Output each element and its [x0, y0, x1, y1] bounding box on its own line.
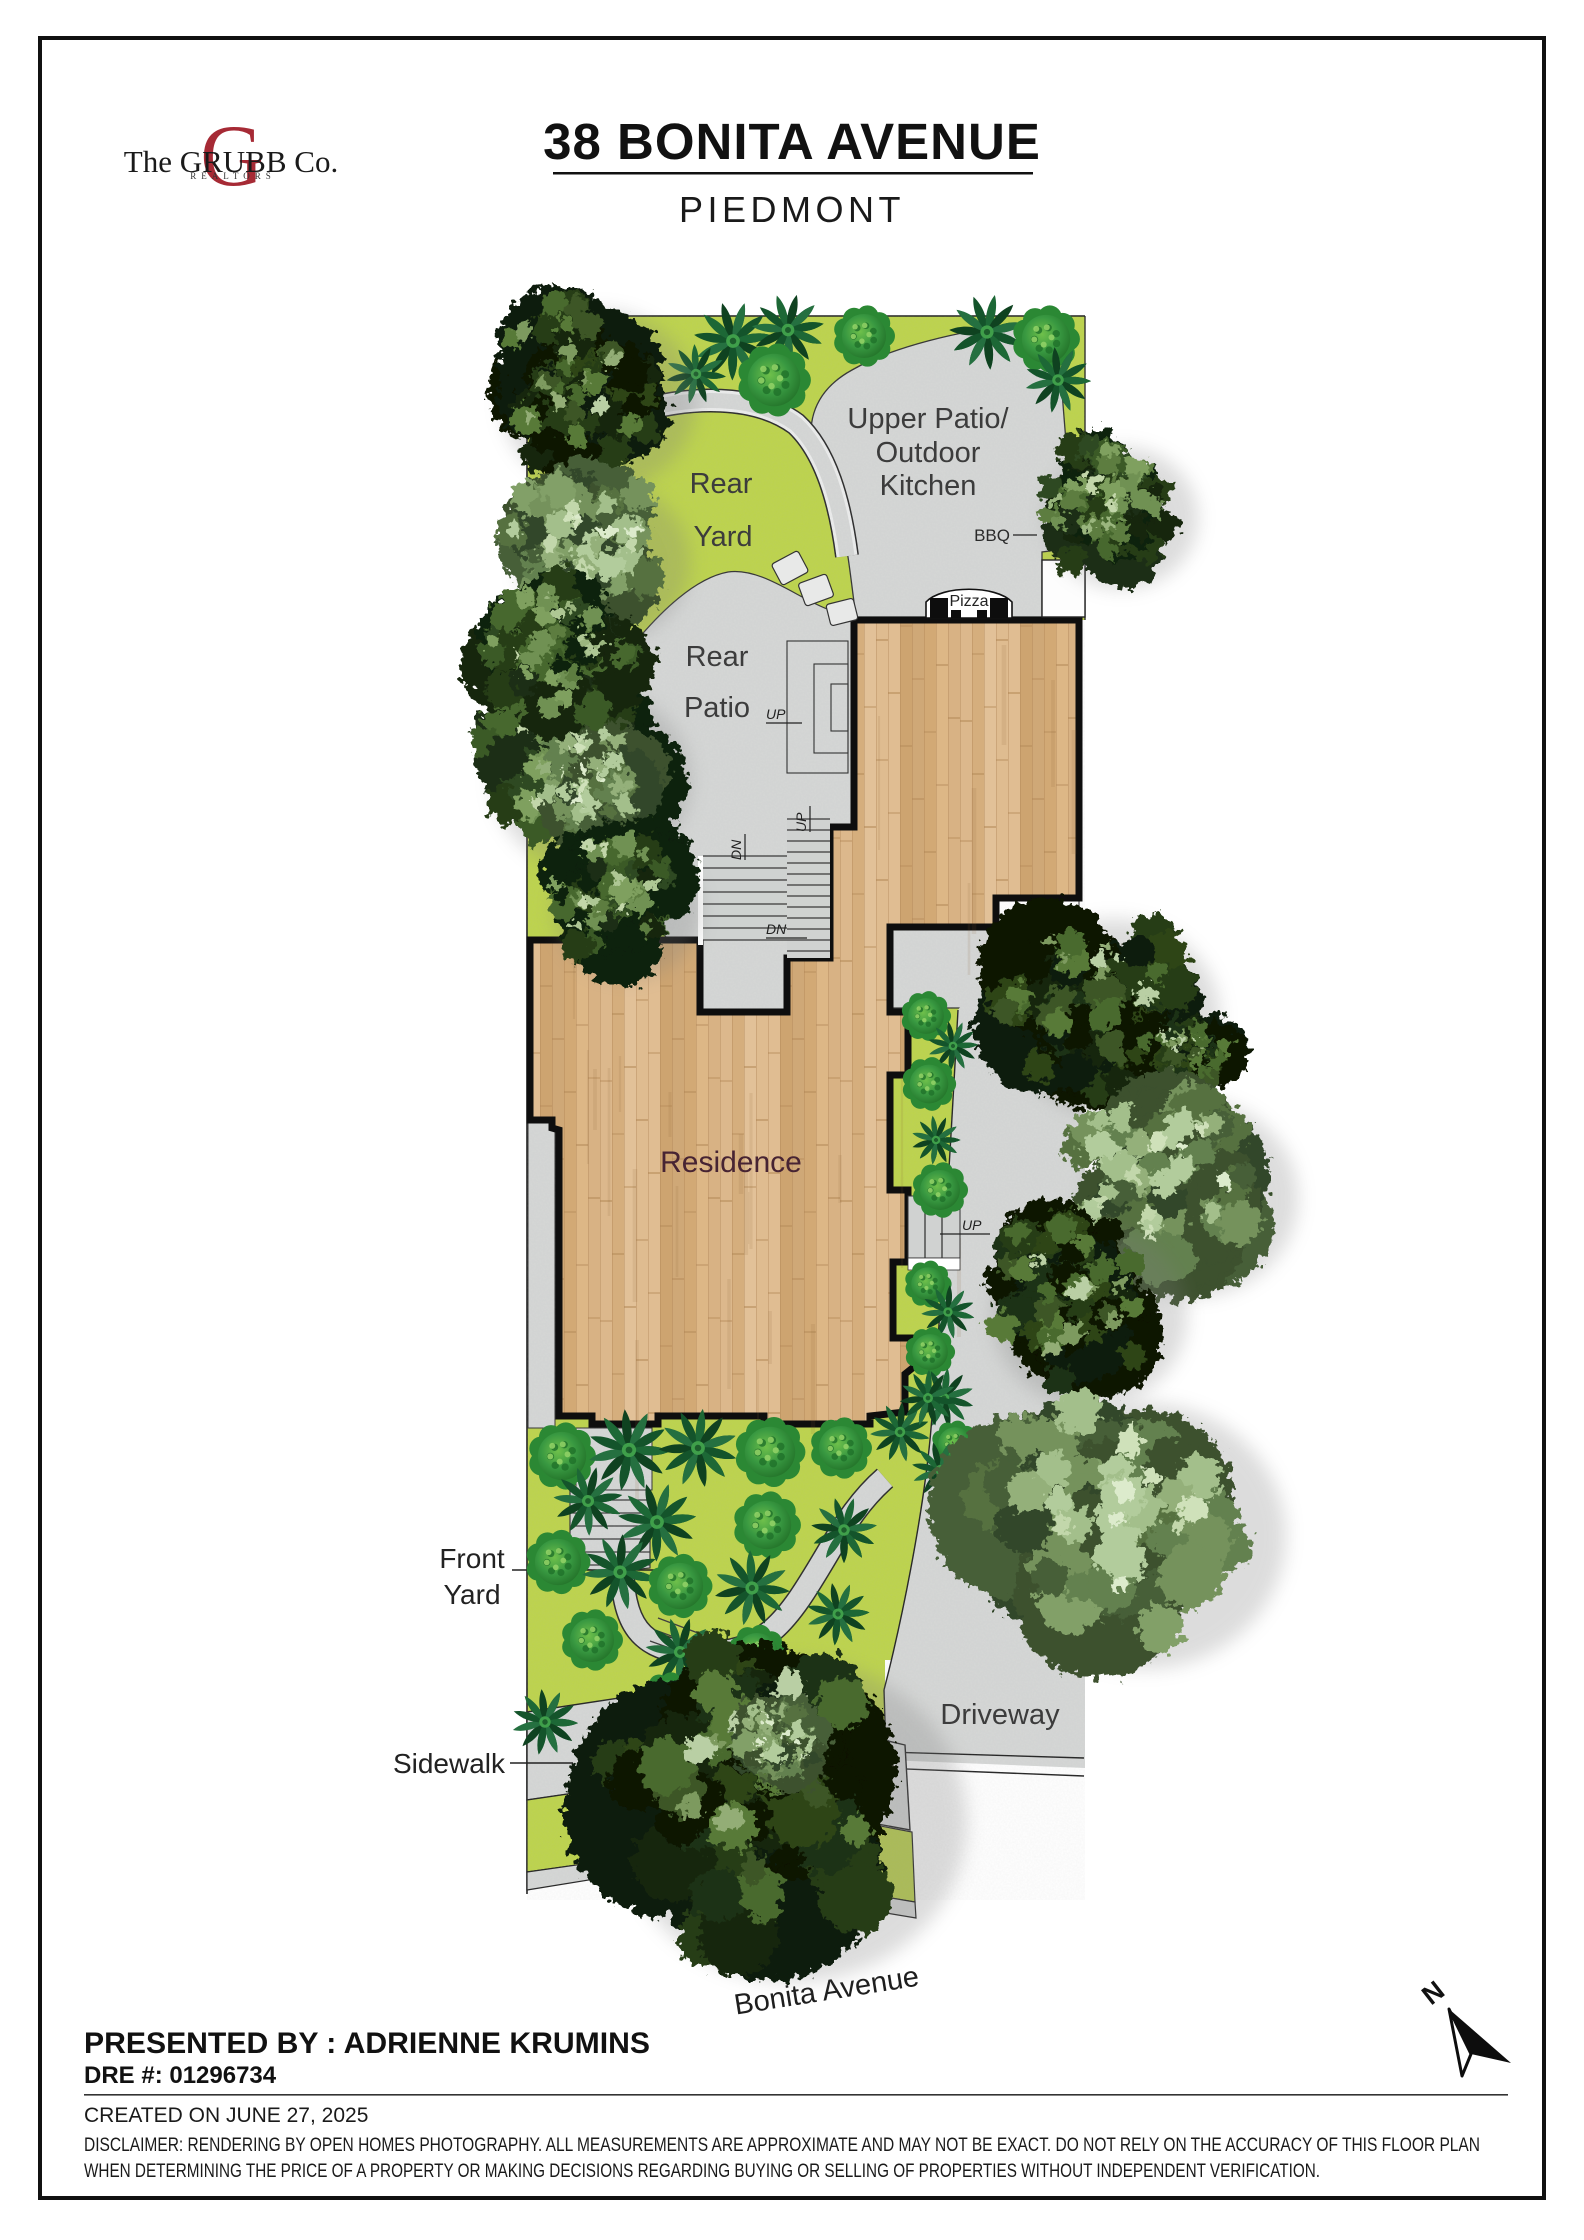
svg-text:DRE #: 01296734: DRE #: 01296734: [84, 2062, 277, 2089]
svg-text:BBQ: BBQ: [974, 526, 1010, 545]
svg-text:Yard: Yard: [693, 521, 752, 553]
svg-text:CREATED ON JUNE 27, 2025: CREATED ON JUNE 27, 2025: [84, 2104, 368, 2127]
svg-text:Sidewalk: Sidewalk: [393, 1748, 506, 1779]
svg-text:Rear: Rear: [686, 641, 749, 673]
svg-text:38 BONITA AVENUE: 38 BONITA AVENUE: [543, 113, 1041, 170]
svg-text:UP: UP: [962, 1217, 982, 1233]
svg-text:PIEDMONT: PIEDMONT: [679, 189, 905, 230]
svg-text:DN: DN: [766, 921, 787, 937]
svg-text:WHEN DETERMINING THE PRICE OF: WHEN DETERMINING THE PRICE OF A PROPERTY…: [84, 2160, 1320, 2182]
svg-text:UP: UP: [793, 812, 809, 832]
svg-text:Front: Front: [439, 1543, 505, 1574]
svg-text:Upper Patio/: Upper Patio/: [847, 403, 1009, 435]
svg-text:DN: DN: [728, 839, 744, 860]
svg-text:Pizza: Pizza: [949, 593, 988, 610]
svg-text:Driveway: Driveway: [940, 1699, 1060, 1731]
svg-text:Patio: Patio: [684, 692, 750, 724]
svg-text:Residence: Residence: [660, 1146, 802, 1179]
svg-text:Outdoor: Outdoor: [876, 437, 981, 469]
svg-text:Yard: Yard: [443, 1579, 500, 1610]
svg-text:PRESENTED BY : ADRIENNE KRUMIN: PRESENTED BY : ADRIENNE KRUMINS: [84, 2027, 650, 2060]
svg-text:UP: UP: [766, 706, 786, 722]
svg-text:REALTORS: REALTORS: [190, 171, 276, 181]
svg-text:DISCLAIMER: RENDERING BY OPEN: DISCLAIMER: RENDERING BY OPEN HOMES PHOT…: [84, 2134, 1480, 2156]
svg-text:Rear: Rear: [690, 468, 753, 500]
svg-text:Kitchen: Kitchen: [880, 470, 977, 502]
